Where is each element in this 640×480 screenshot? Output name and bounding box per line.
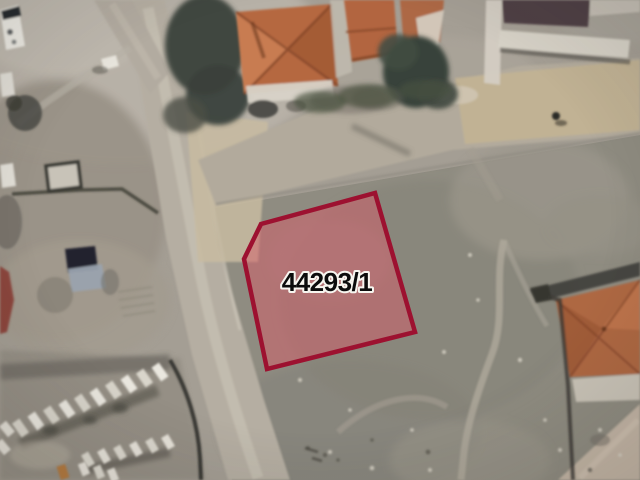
- satellite-parcel-map: 44293/1: [0, 0, 640, 480]
- vignette: [0, 0, 640, 480]
- aerial-photo: 44293/1: [0, 0, 640, 480]
